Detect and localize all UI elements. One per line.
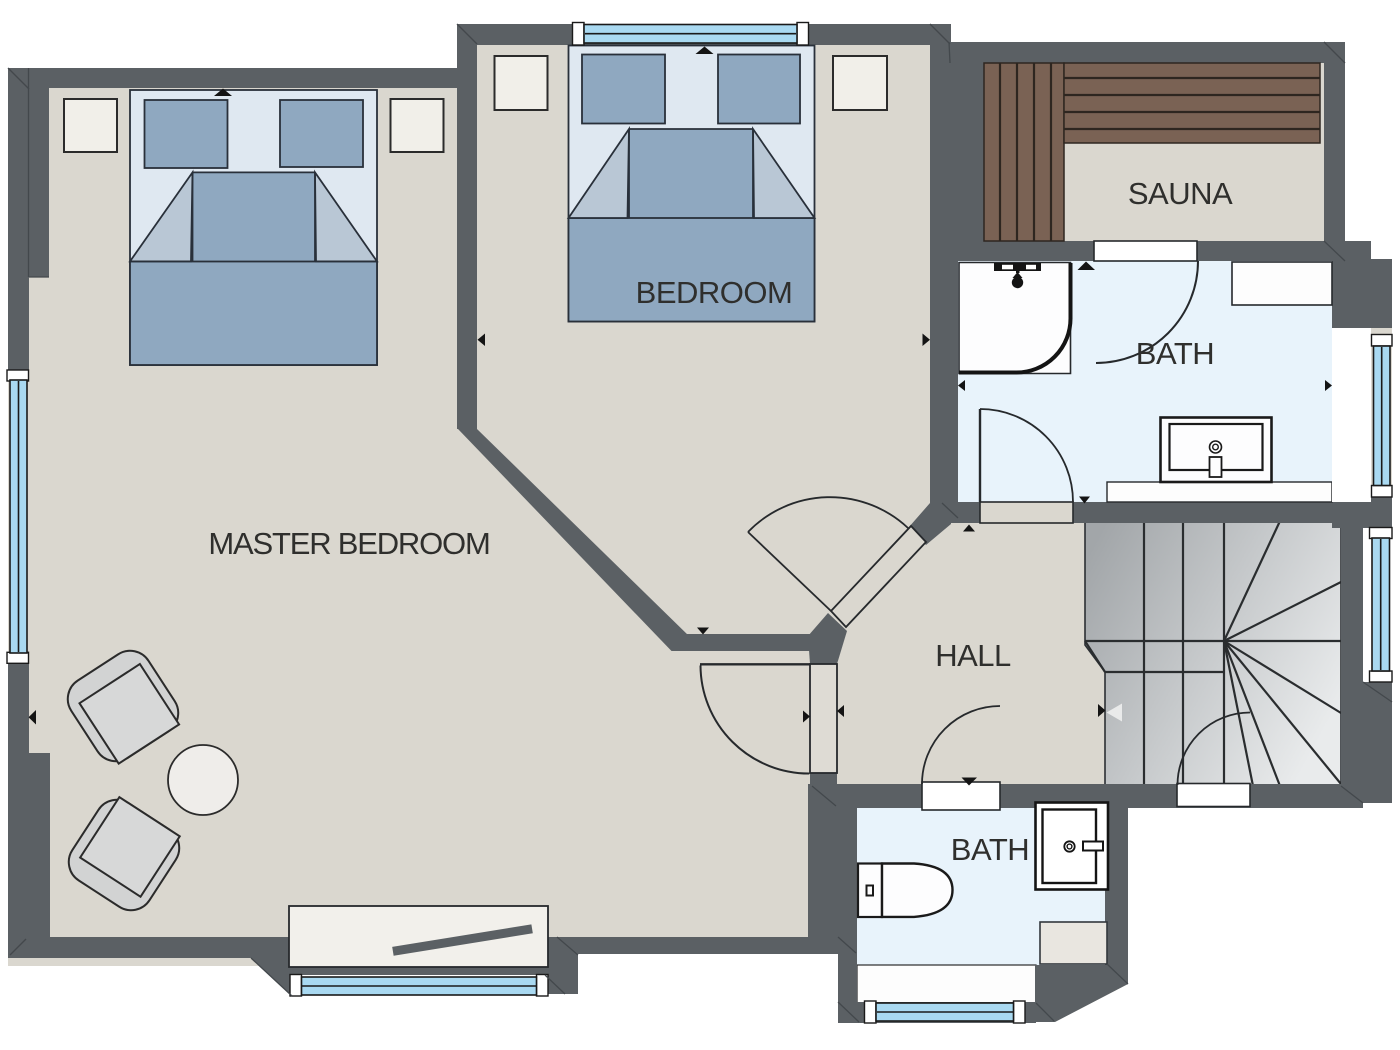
svg-text:MASTER BEDROOM: MASTER BEDROOM bbox=[208, 526, 489, 561]
svg-text:BEDROOM: BEDROOM bbox=[636, 275, 793, 310]
svg-text:BATH: BATH bbox=[1136, 336, 1214, 371]
svg-text:SAUNA: SAUNA bbox=[1128, 176, 1233, 211]
svg-text:BATH: BATH bbox=[951, 832, 1029, 867]
svg-text:HALL: HALL bbox=[935, 638, 1011, 673]
